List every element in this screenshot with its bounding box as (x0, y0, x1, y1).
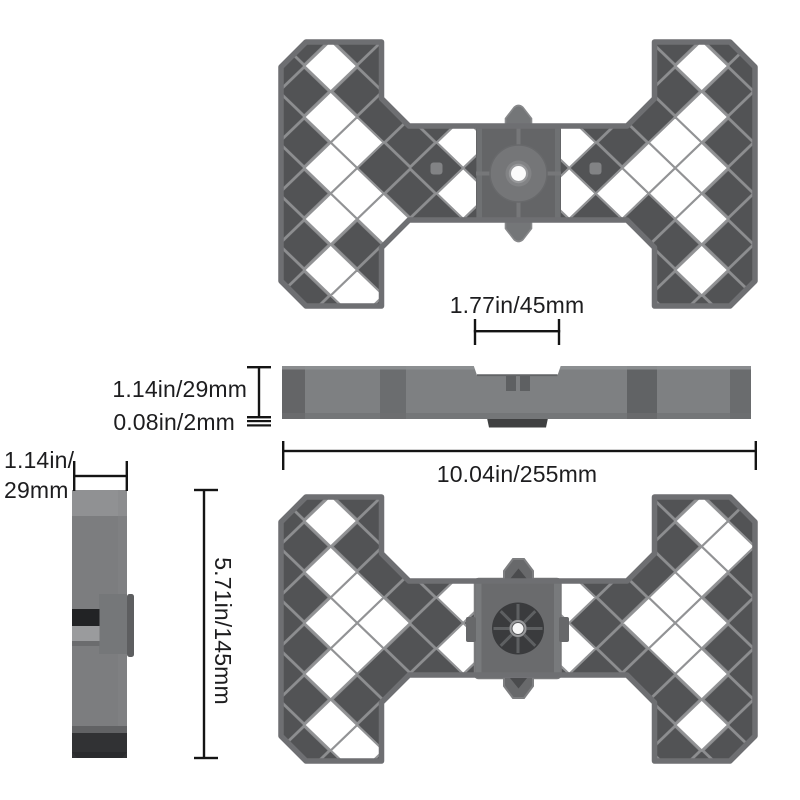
svg-text:29mm: 29mm (4, 477, 69, 503)
svg-text:0.08in/2mm: 0.08in/2mm (113, 409, 235, 435)
svg-text:5.71in/145mm: 5.71in/145mm (210, 557, 236, 705)
svg-text:10.04in/255mm: 10.04in/255mm (437, 461, 598, 487)
svg-text:1.77in/45mm: 1.77in/45mm (450, 292, 585, 318)
svg-text:1.14in/: 1.14in/ (4, 447, 75, 473)
svg-text:1.14in/29mm: 1.14in/29mm (112, 376, 247, 402)
